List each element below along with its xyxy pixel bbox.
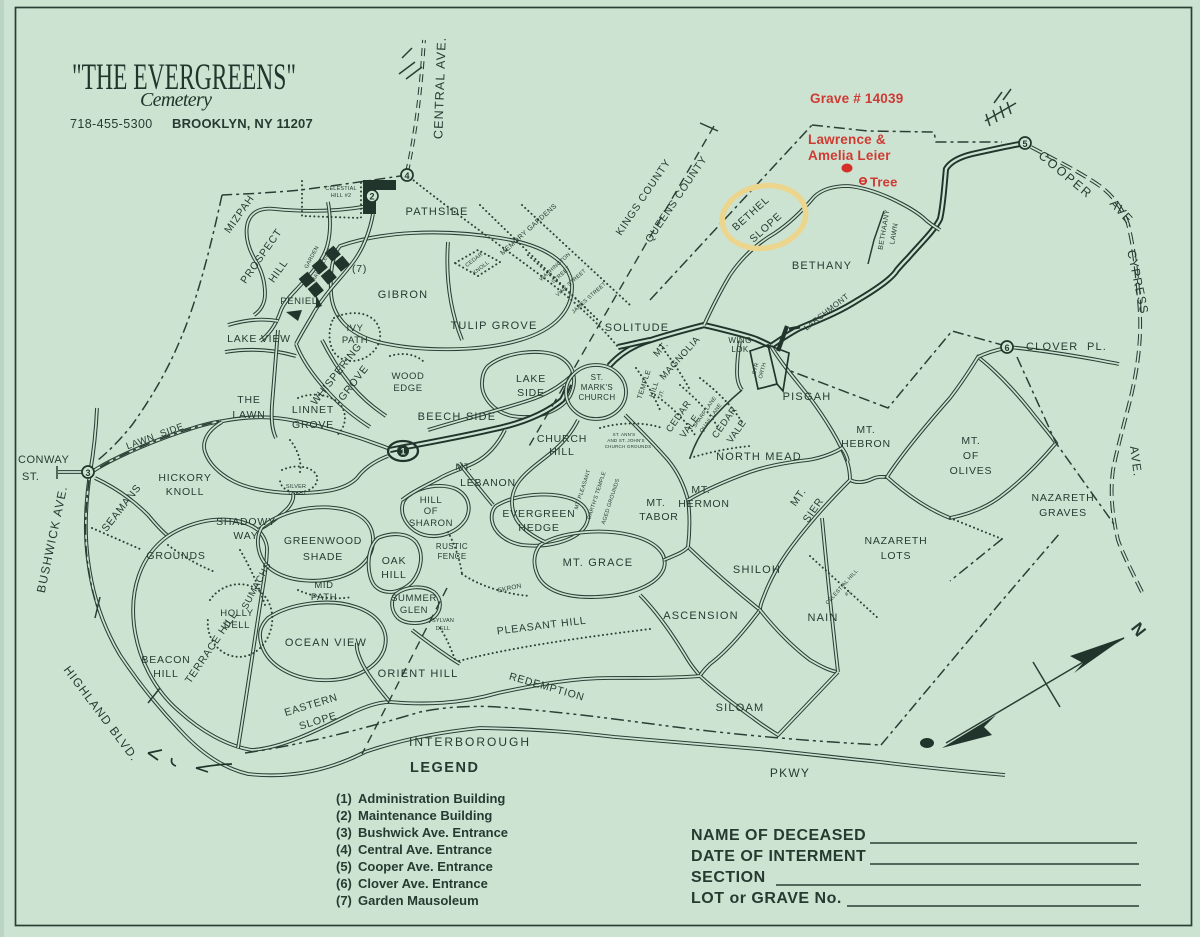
svg-text:CHURCH GROUNDS: CHURCH GROUNDS (605, 444, 652, 449)
svg-text:TULIP GROVE: TULIP GROVE (451, 320, 538, 332)
svg-text:MT. GRACE: MT. GRACE (563, 557, 634, 569)
svg-text:Central Ave. Entrance: Central Ave. Entrance (358, 842, 492, 857)
svg-text:CORD: CORD (289, 491, 306, 497)
svg-text:ASCENSION: ASCENSION (663, 610, 739, 622)
svg-text:PISGAH: PISGAH (783, 391, 832, 403)
svg-text:GROUNDS: GROUNDS (146, 550, 205, 562)
svg-text:OF: OF (424, 506, 438, 517)
svg-text:GRAVES: GRAVES (1039, 507, 1087, 519)
svg-text:MT.: MT. (646, 497, 665, 509)
svg-text:LAKE VIEW: LAKE VIEW (227, 333, 291, 345)
svg-text:Cemetery: Cemetery (140, 89, 212, 111)
svg-text:SHADOWY: SHADOWY (216, 516, 276, 528)
svg-text:PKWY: PKWY (770, 766, 810, 780)
svg-text:Clover Ave. Entrance: Clover Ave. Entrance (358, 876, 488, 891)
svg-text:SILVER: SILVER (286, 484, 306, 490)
svg-text:(6): (6) (336, 876, 352, 891)
svg-text:Grave # 14039: Grave # 14039 (810, 91, 903, 106)
svg-text:NORTH MEAD: NORTH MEAD (716, 451, 802, 463)
svg-text:EVERGREEN: EVERGREEN (502, 508, 575, 520)
svg-text:MARK'S: MARK'S (581, 383, 613, 392)
svg-text:(7): (7) (352, 263, 367, 275)
svg-text:THE: THE (237, 394, 260, 406)
svg-text:MT.: MT. (455, 462, 472, 473)
svg-text:(3): (3) (336, 825, 352, 840)
svg-text:ST. ANN'S: ST. ANN'S (613, 432, 636, 437)
svg-text:KNOLL: KNOLL (166, 486, 204, 498)
svg-text:HEDGE: HEDGE (518, 522, 559, 534)
svg-text:GLEN: GLEN (400, 605, 428, 616)
svg-text:NAME OF DECEASED: NAME OF DECEASED (691, 827, 866, 844)
svg-text:HILL: HILL (381, 569, 406, 581)
svg-text:HICKORY: HICKORY (158, 472, 211, 484)
svg-text:(5): (5) (336, 859, 352, 874)
svg-text:LOTS: LOTS (881, 550, 912, 562)
svg-text:NAIN: NAIN (807, 612, 838, 624)
svg-text:ORIENT HILL: ORIENT HILL (378, 668, 459, 680)
svg-text:(1): (1) (336, 791, 352, 806)
svg-text:SHILOH: SHILOH (733, 564, 781, 576)
svg-text:Administration Building: Administration Building (358, 791, 505, 806)
svg-text:SOLITUDE: SOLITUDE (605, 322, 670, 334)
svg-text:TABOR: TABOR (639, 511, 678, 523)
svg-text:ST.: ST. (22, 471, 39, 483)
svg-text:HILL: HILL (420, 495, 442, 506)
svg-text:LINNET: LINNET (292, 404, 334, 416)
svg-text:Tree: Tree (870, 175, 898, 190)
svg-text:Cooper Ave. Entrance: Cooper Ave. Entrance (358, 859, 493, 874)
svg-text:WAY: WAY (233, 530, 258, 542)
svg-text:CONWAY: CONWAY (18, 454, 69, 466)
svg-text:LOT or GRAVE No.: LOT or GRAVE No. (691, 890, 842, 907)
svg-text:Amelia Leier: Amelia Leier (808, 148, 891, 163)
svg-text:OF: OF (963, 450, 979, 462)
svg-text:SIDE: SIDE (517, 387, 545, 399)
svg-text:PATH: PATH (311, 592, 337, 603)
svg-text:OAK: OAK (382, 555, 407, 567)
svg-text:Bushwick Ave. Entrance: Bushwick Ave. Entrance (358, 825, 508, 840)
svg-text:CLOVER PL.: CLOVER PL. (1026, 341, 1107, 353)
svg-text:(2): (2) (336, 808, 352, 823)
svg-text:6: 6 (1004, 343, 1009, 353)
svg-text:BEECH SIDE: BEECH SIDE (418, 411, 497, 423)
svg-text:Garden Mausoleum: Garden Mausoleum (358, 893, 479, 908)
svg-text:CHURCH: CHURCH (537, 433, 587, 445)
svg-text:HEBRON: HEBRON (841, 438, 891, 450)
svg-text:LEGEND: LEGEND (410, 760, 479, 776)
svg-text:WOOD: WOOD (391, 371, 424, 382)
svg-text:NAZARETH: NAZARETH (865, 535, 928, 547)
svg-text:MT.: MT. (961, 435, 980, 447)
svg-text:MT.: MT. (691, 484, 710, 496)
svg-text:SUMMER: SUMMER (391, 593, 437, 604)
svg-text:718-455-5300: 718-455-5300 (70, 117, 153, 131)
svg-text:CHURCH: CHURCH (578, 393, 615, 402)
svg-text:GIBRON: GIBRON (378, 289, 429, 301)
svg-text:GROVE: GROVE (292, 419, 334, 431)
svg-text:NAZARETH: NAZARETH (1032, 492, 1095, 504)
svg-text:SECTION: SECTION (691, 869, 766, 886)
svg-text:RUSTIC: RUSTIC (436, 542, 468, 551)
svg-text:HILL: HILL (549, 446, 574, 458)
svg-text:CELESTIAL: CELESTIAL (325, 186, 356, 192)
svg-text:LAKE: LAKE (516, 373, 546, 385)
svg-text:BETHANY: BETHANY (792, 260, 852, 272)
svg-text:LEBANON: LEBANON (460, 477, 516, 489)
svg-text:MID: MID (314, 580, 333, 591)
svg-text:(4): (4) (336, 842, 352, 857)
svg-text:AND ST. JOHN'S: AND ST. JOHN'S (607, 438, 644, 443)
svg-text:5: 5 (1022, 139, 1027, 149)
svg-text:3: 3 (85, 468, 90, 478)
svg-text:SYLVAN: SYLVAN (432, 618, 454, 624)
svg-text:HILL: HILL (153, 668, 178, 680)
svg-text:PATHSIDE: PATHSIDE (406, 206, 469, 218)
svg-text:LAWN: LAWN (232, 409, 265, 421)
svg-text:Maintenance Building: Maintenance Building (358, 808, 492, 823)
svg-text:FENCE: FENCE (437, 552, 466, 561)
svg-text:1: 1 (400, 447, 405, 457)
svg-text:BROOKLYN, NY 11207: BROOKLYN, NY 11207 (172, 116, 313, 131)
svg-text:OLIVES: OLIVES (950, 465, 993, 477)
svg-text:MT.: MT. (856, 424, 875, 436)
svg-text:INTERBOROUGH: INTERBOROUGH (409, 735, 531, 749)
svg-text:DATE OF INTERMENT: DATE OF INTERMENT (691, 848, 866, 865)
svg-text:IVY: IVY (346, 323, 363, 334)
svg-text:DELL: DELL (436, 626, 451, 632)
svg-text:2: 2 (369, 192, 374, 202)
svg-text:HILL #2: HILL #2 (331, 193, 351, 199)
svg-text:BEACON: BEACON (141, 654, 190, 666)
svg-text:SHADE: SHADE (303, 551, 343, 563)
svg-text:OCEAN VIEW: OCEAN VIEW (285, 637, 367, 649)
svg-text:SHARON: SHARON (409, 518, 453, 529)
svg-text:PENIEL: PENIEL (280, 296, 317, 307)
svg-text:SILOAM: SILOAM (716, 702, 765, 714)
svg-text:GREENWOOD: GREENWOOD (284, 535, 362, 547)
svg-text:LOK: LOK (731, 345, 748, 354)
svg-text:ST.: ST. (591, 373, 604, 382)
svg-text:EDGE: EDGE (393, 383, 422, 394)
svg-text:(7): (7) (336, 893, 352, 908)
svg-text:Lawrence &: Lawrence & (808, 132, 886, 147)
svg-text:4: 4 (404, 171, 409, 181)
svg-text:HERMON: HERMON (678, 498, 729, 510)
svg-text:WING: WING (728, 336, 751, 345)
